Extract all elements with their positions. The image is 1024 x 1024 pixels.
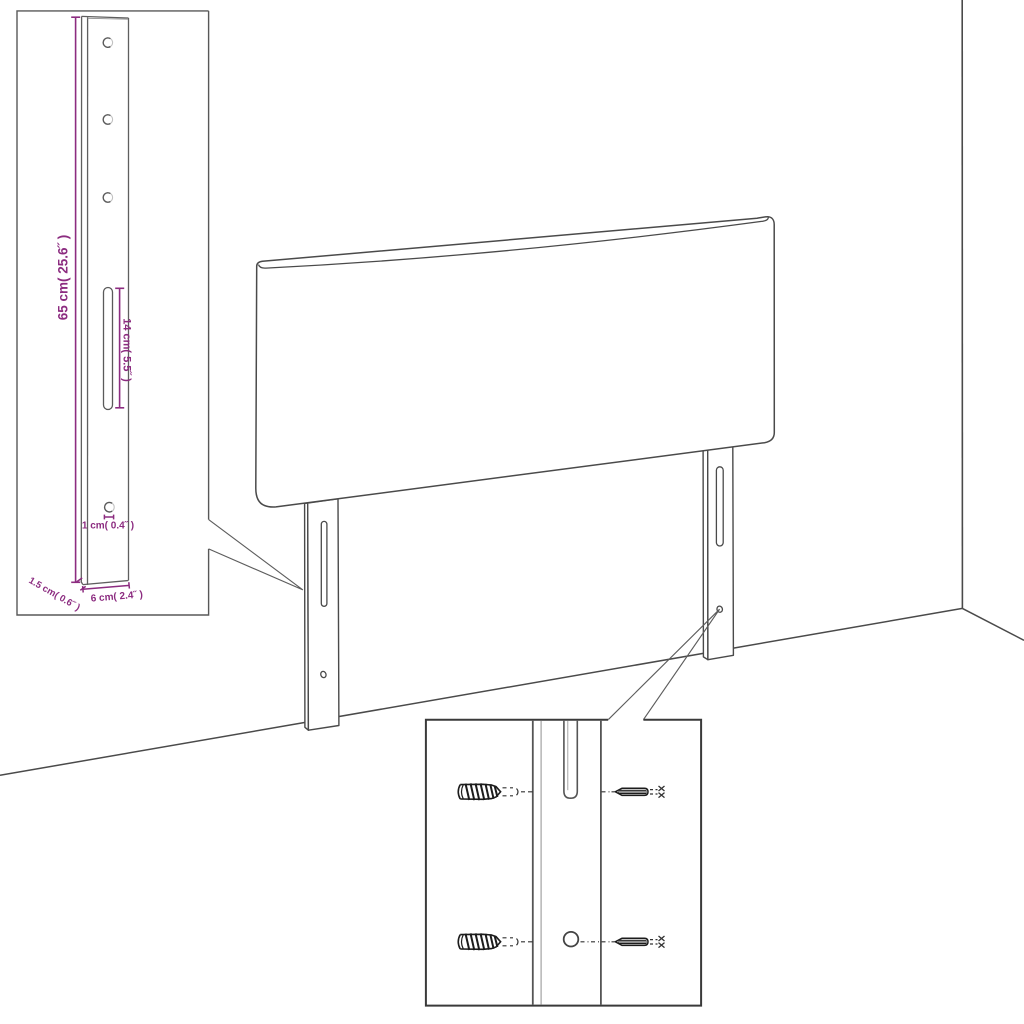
svg-text:65 cm( 25.6˝ ): 65 cm( 25.6˝ )	[56, 235, 71, 321]
svg-text:1 cm( 0.4˝ ): 1 cm( 0.4˝ )	[82, 521, 134, 532]
svg-text:14 cm( 5.5˝ ): 14 cm( 5.5˝ )	[121, 318, 133, 382]
